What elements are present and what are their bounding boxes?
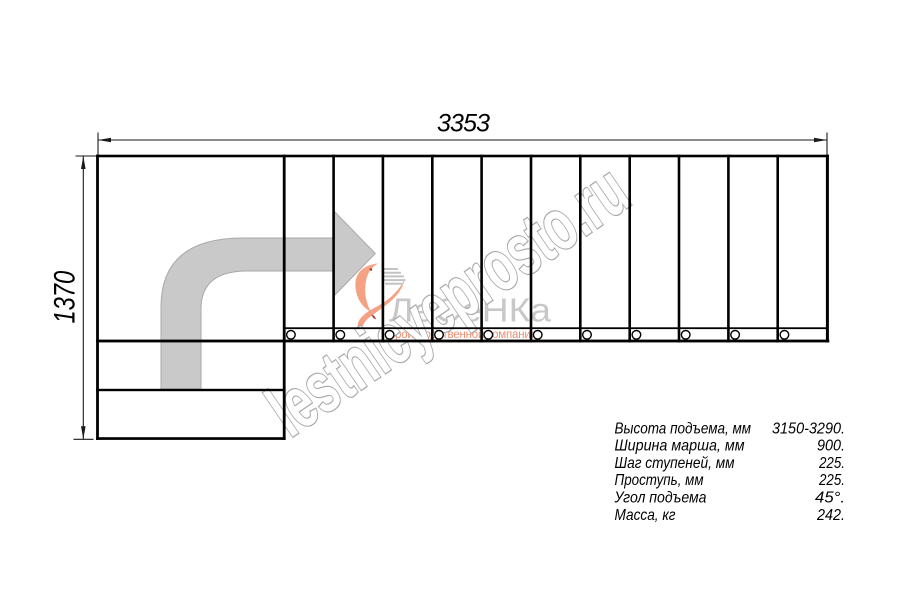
svg-text:45°.: 45°. xyxy=(815,490,845,507)
svg-text:Масса, кг: Масса, кг xyxy=(615,507,676,524)
svg-text:Ширина марша, мм: Ширина марша, мм xyxy=(615,438,745,455)
svg-text:Высота подъема, мм: Высота подъема, мм xyxy=(615,420,752,437)
svg-text:225.: 225. xyxy=(818,472,845,489)
svg-text:Шаг ступеней, мм: Шаг ступеней, мм xyxy=(615,455,735,472)
svg-text:3150-3290.: 3150-3290. xyxy=(772,420,845,437)
svg-text:225.: 225. xyxy=(818,455,845,472)
svg-text:Угол подъема: Угол подъема xyxy=(614,490,707,507)
svg-text:900.: 900. xyxy=(817,438,845,455)
svg-text:1370: 1370 xyxy=(48,271,81,324)
svg-text:Проступь, мм: Проступь, мм xyxy=(615,472,704,489)
svg-text:3353: 3353 xyxy=(437,110,490,138)
svg-text:242.: 242. xyxy=(816,507,845,524)
